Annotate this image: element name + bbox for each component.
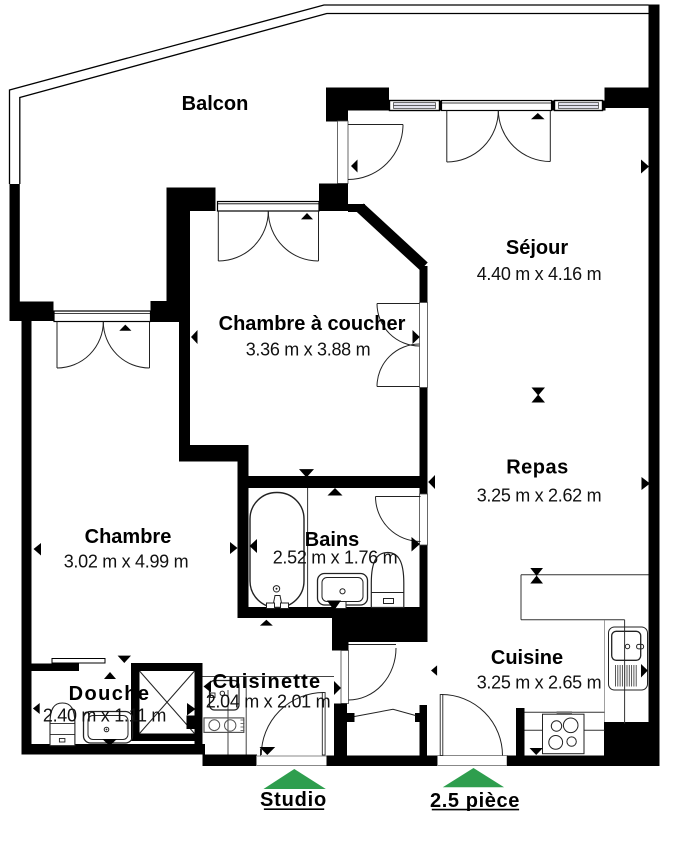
svg-text:Chambre à coucher: Chambre à coucher bbox=[219, 313, 406, 335]
svg-text:Douche: Douche bbox=[69, 683, 151, 705]
svg-text:3.25 m x 2.65 m: 3.25 m x 2.65 m bbox=[477, 673, 602, 693]
svg-text:3.36 m x 3.88 m: 3.36 m x 3.88 m bbox=[246, 340, 371, 360]
svg-text:Repas: Repas bbox=[506, 457, 569, 479]
svg-text:Studio: Studio bbox=[260, 789, 327, 811]
svg-text:Chambre: Chambre bbox=[85, 526, 172, 548]
svg-text:2.40 m x 1.11 m: 2.40 m x 1.11 m bbox=[43, 706, 166, 726]
svg-text:Balcon: Balcon bbox=[182, 93, 249, 115]
svg-text:4.40 m x 4.16 m: 4.40 m x 4.16 m bbox=[477, 264, 602, 284]
svg-text:2.5 pièce: 2.5 pièce bbox=[430, 790, 520, 812]
svg-text:2.52 m x 1.76 m: 2.52 m x 1.76 m bbox=[273, 548, 398, 568]
svg-text:Séjour: Séjour bbox=[506, 237, 568, 259]
svg-text:Cuisine: Cuisine bbox=[491, 647, 563, 669]
svg-text:2.04 m x 2.01 m: 2.04 m x 2.01 m bbox=[206, 692, 331, 712]
svg-text:3.25 m x 2.62 m: 3.25 m x 2.62 m bbox=[477, 486, 602, 506]
svg-text:3.02 m x 4.99 m: 3.02 m x 4.99 m bbox=[64, 552, 189, 572]
svg-text:Cuisinette: Cuisinette bbox=[213, 671, 322, 693]
